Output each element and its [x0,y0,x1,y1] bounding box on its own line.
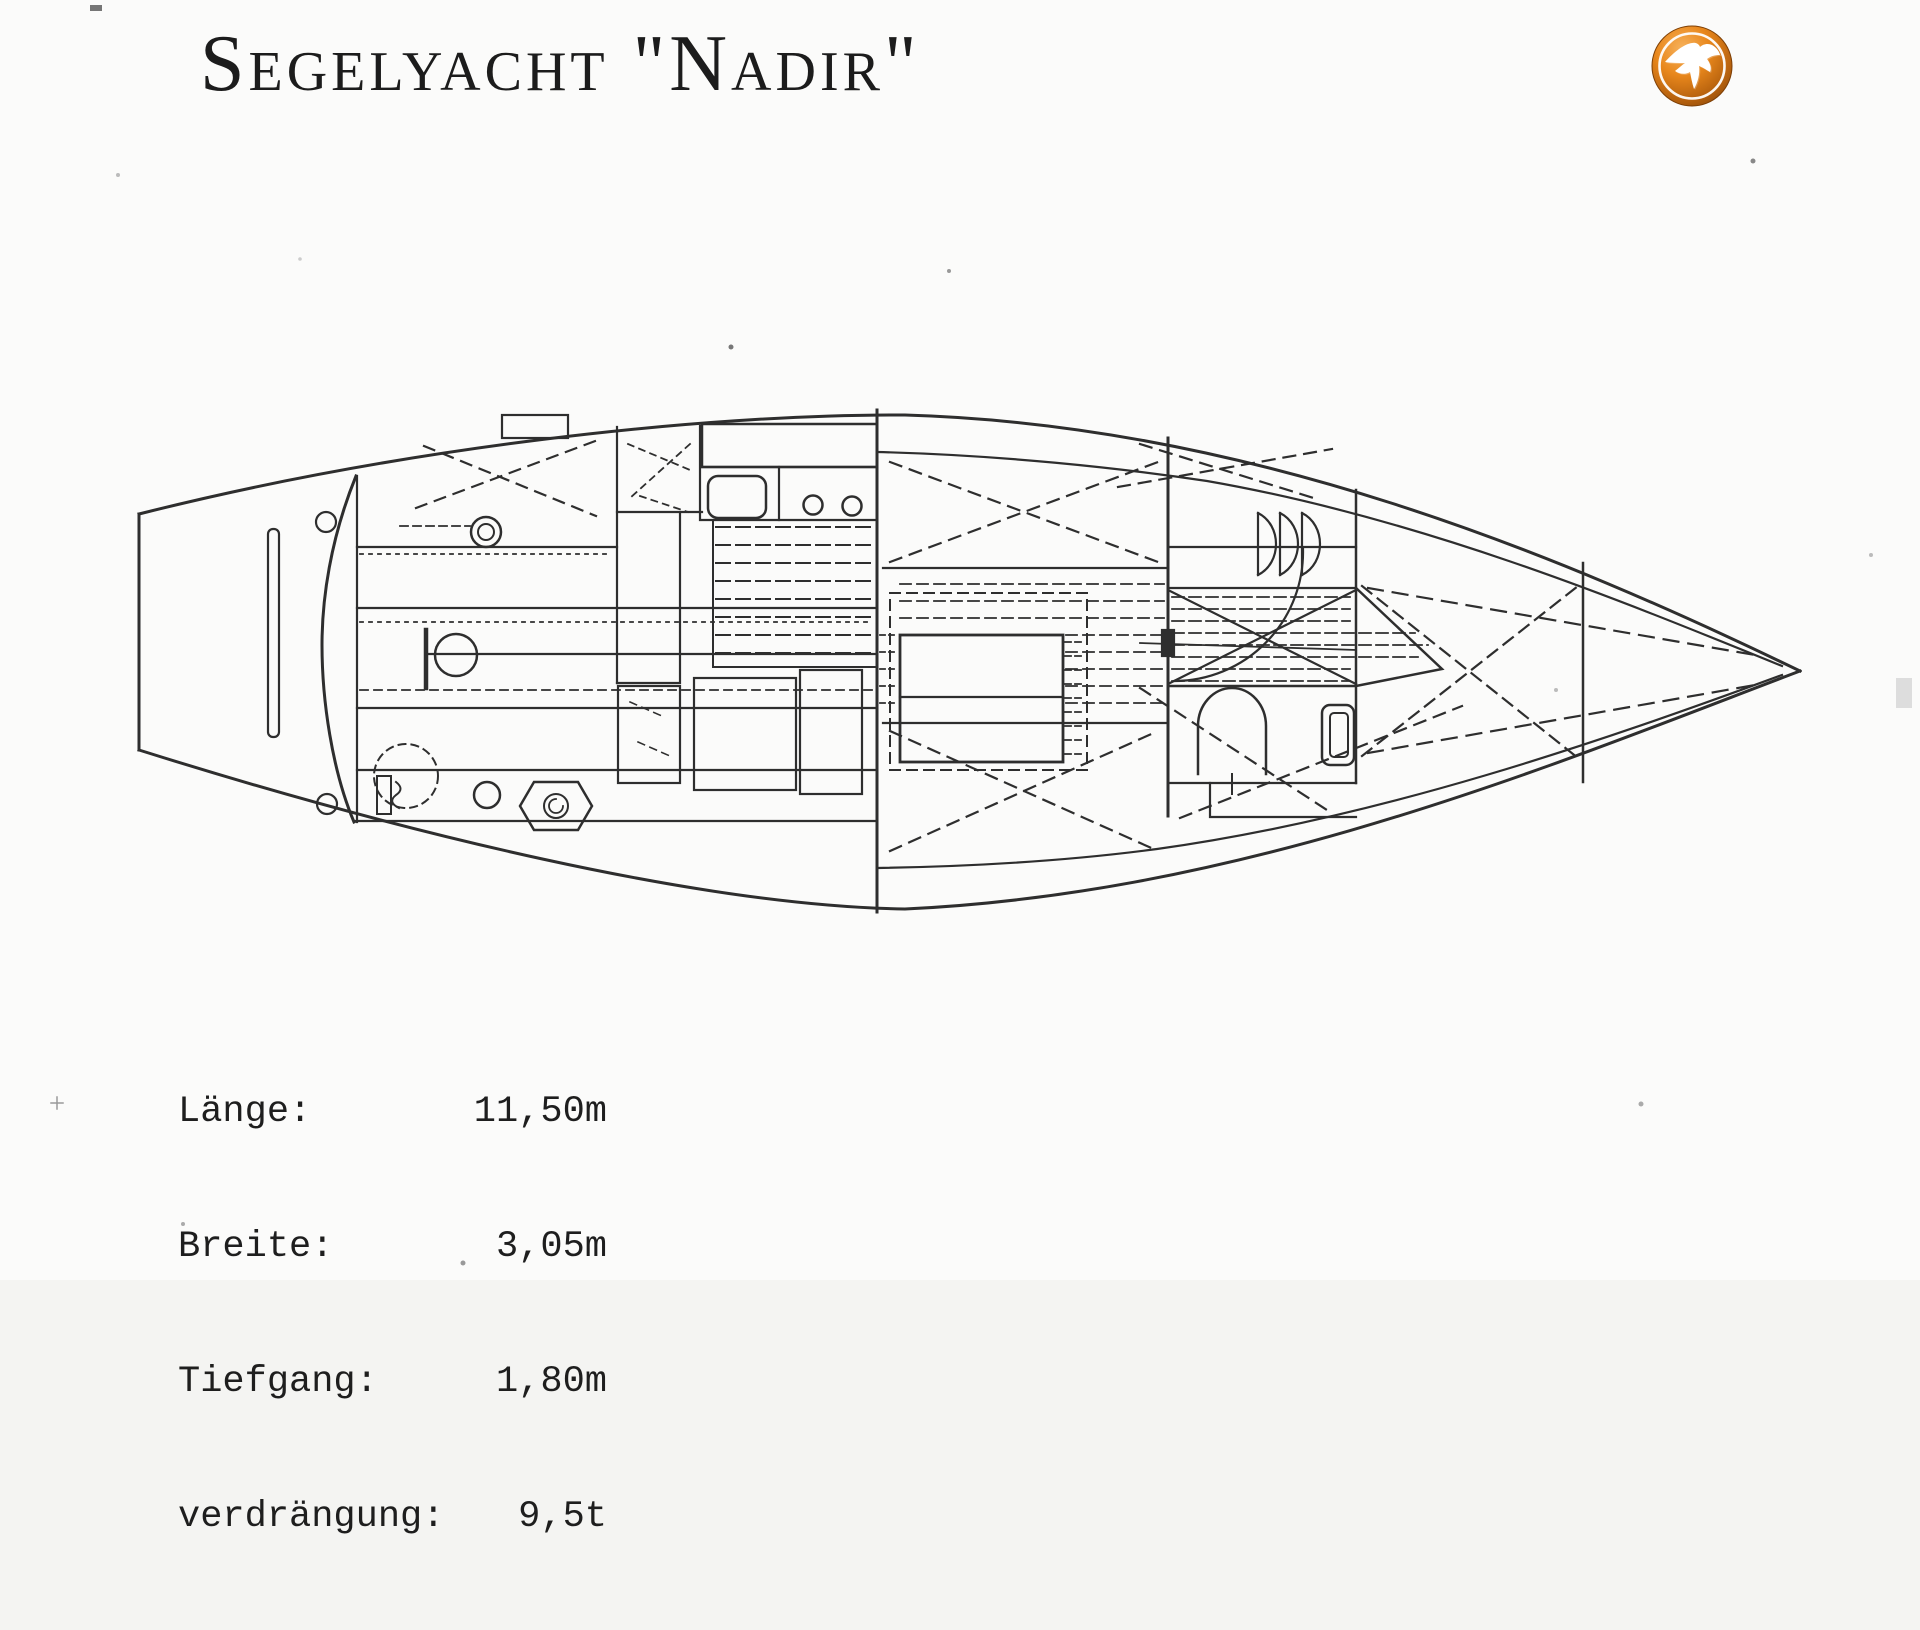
hex-winch-icon [520,782,592,830]
spec-row-draft: Tiefgang:1,80m [178,1360,607,1405]
sink-icon [708,476,766,518]
scanned-document-page: Segelyacht "Nadir" [0,0,1920,1280]
quarter-locker [800,670,862,794]
head-door-arch [1198,688,1266,774]
side-deck-locker-x [416,440,598,516]
spec-row-displacement: verdrängung:9,5t [178,1495,607,1540]
halyard-winch-inner [478,524,494,540]
spec-label: Tiefgang: [178,1360,467,1405]
spec-value: 11,50m [467,1090,607,1135]
pump-icon [392,782,400,808]
spec-table: Länge:11,50m Breite:3,05m Tiefgang:1,80m… [178,1000,607,1630]
sole-hatching [713,520,877,667]
v-berth-outline-dashes [1368,588,1755,753]
forward-cabin [1140,438,1442,817]
companionway-hatch [702,424,877,467]
spec-value: 3,05m [467,1225,607,1270]
traveler-hatch [502,415,568,438]
door-swing-arc [1175,549,1303,681]
hull-outline [139,415,1800,909]
winch-icon [474,782,500,808]
rudder-slot [268,529,279,737]
engine-box [694,678,796,790]
port-settee-berth-x [890,462,1158,562]
spec-value: 9,5t [467,1495,607,1540]
cockpit [268,415,877,830]
hanging-locker-icon [1258,513,1320,575]
walkway-sole-dashes [880,584,1164,703]
galley-counter [617,513,680,683]
berth-hatching [1172,597,1428,681]
spec-label: Breite: [178,1225,467,1270]
table-leaf-hatch [1065,642,1085,754]
spec-label: Länge: [178,1090,467,1135]
step-box [618,686,680,783]
locker-x-dashes [628,444,690,512]
spec-value: 1,80m [467,1360,607,1405]
stern-winch-port-icon [316,512,336,532]
step-box-dashes [630,702,670,756]
saloon-table [900,635,1063,762]
starboard-settee-berth-x [890,731,1158,851]
halyard-winch-icon [471,517,501,547]
saloon [880,462,1174,851]
coaming-curve [322,476,356,822]
sheer-line-starboard [139,671,1800,909]
stove-burner-icon [804,496,823,515]
sheer-line-port [139,415,1800,671]
spec-row-length: Länge:11,50m [178,1090,607,1135]
double-berth-outline [1168,588,1442,686]
spec-row-beam: Breite:3,05m [178,1225,607,1270]
spec-label: verdrängung: [178,1495,467,1540]
double-berth-x [1168,590,1356,684]
stove-burner-icon [843,497,862,516]
deck-inner-lines [877,452,1782,868]
